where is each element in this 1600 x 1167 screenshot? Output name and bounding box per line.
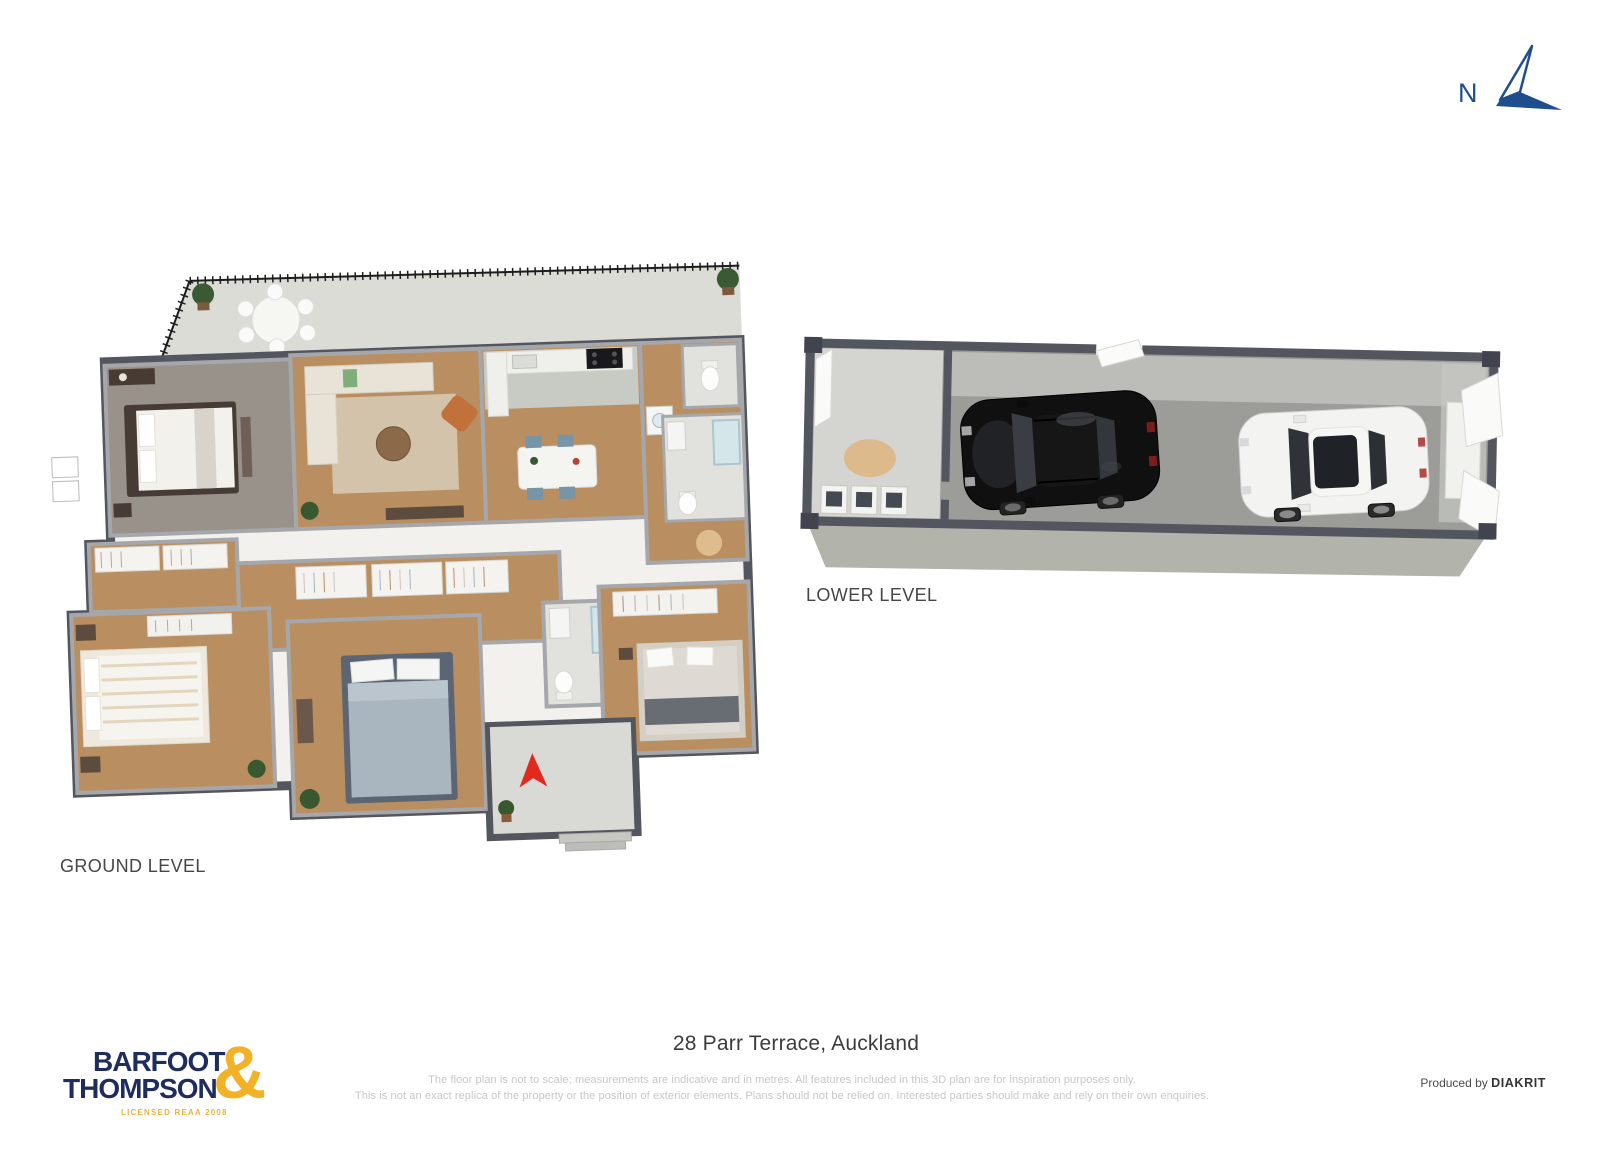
washer-dryer-icons <box>821 485 908 515</box>
north-arrow-icon <box>1496 46 1562 110</box>
toilet-icon <box>701 360 720 391</box>
lower-level-plan <box>798 336 1504 584</box>
toilet-icon <box>678 491 697 515</box>
north-label: N <box>1458 78 1478 108</box>
black-car <box>959 389 1162 518</box>
ground-level-plan <box>50 256 760 858</box>
master-bedroom <box>104 359 296 535</box>
shower-icon <box>713 420 741 465</box>
garage-laundry-nook <box>812 343 949 524</box>
disclaimer-line-2: This is not an exact replica of the prop… <box>0 1090 1582 1102</box>
entry-steps <box>565 841 625 851</box>
laundry-bathroom <box>640 340 748 563</box>
logo-tagline: LICENSED REAA 2008 <box>121 1108 228 1117</box>
ground-level-label: GROUND LEVEL <box>60 856 206 877</box>
bedroom-three <box>288 615 487 816</box>
living-room <box>290 349 486 530</box>
white-car <box>1237 405 1430 523</box>
producer-name: DIAKRIT <box>1491 1076 1546 1090</box>
property-address: 28 Parr Terrace, Auckland <box>0 1032 1596 1056</box>
floorplan-page: N <box>0 0 1600 1167</box>
kitchen-dining <box>480 343 646 522</box>
stove-icon <box>586 348 623 369</box>
sink-icon <box>512 355 536 369</box>
entry-porch <box>487 720 637 854</box>
vanity-icon <box>667 422 686 451</box>
walk-in-closet <box>89 539 239 612</box>
produced-by-label: Produced by <box>1420 1076 1491 1090</box>
north-compass: N <box>1440 36 1580 120</box>
lower-level-label: LOWER LEVEL <box>806 585 937 606</box>
toilet-icon <box>554 671 573 701</box>
open-door-panel <box>815 349 833 427</box>
bedroom-two <box>71 608 275 793</box>
vanity-icon <box>549 608 570 639</box>
disclaimer-line-1: The floor plan is not to scale; measurem… <box>0 1074 1582 1086</box>
produced-by: Produced by DIAKRIT <box>1420 1076 1546 1090</box>
exterior-units <box>52 457 80 502</box>
